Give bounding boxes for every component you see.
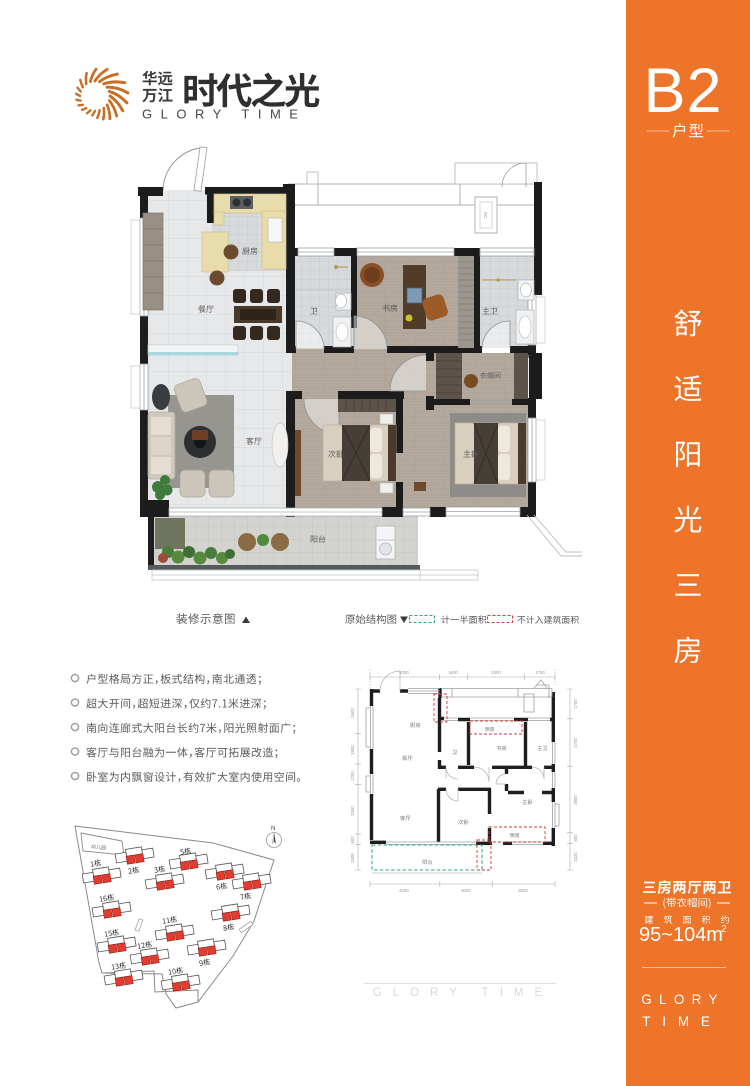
svg-text:2700: 2700 [573,738,578,748]
svg-text:2: 2 [721,924,727,935]
svg-text:N: N [271,826,275,832]
svg-text:3000: 3000 [461,888,471,893]
svg-text:1500: 1500 [350,853,355,863]
svg-text:2900: 2900 [350,806,355,816]
svg-text:AC: AC [483,212,488,219]
svg-text:1700: 1700 [573,699,578,709]
svg-text:4000: 4000 [399,670,409,675]
svg-text:3800: 3800 [573,795,578,805]
svg-text:3300: 3300 [491,670,501,675]
svg-text:TIME: TIME [642,1014,721,1029]
svg-text:1750: 1750 [535,670,545,675]
svg-text:1200: 1200 [350,771,355,781]
svg-text:2600: 2600 [350,708,355,718]
svg-text:3600: 3600 [518,888,528,893]
svg-text:1600: 1600 [448,670,458,675]
svg-text:4000: 4000 [399,888,409,893]
svg-text:1800: 1800 [350,745,355,755]
svg-text:1520: 1520 [573,852,578,862]
svg-text:GLORY: GLORY [641,992,725,1007]
svg-text:600: 600 [350,836,355,844]
svg-text:600: 600 [573,834,578,842]
svg-text:95~104m: 95~104m [639,924,723,946]
svg-text:GLORY TIME: GLORY TIME [142,107,306,122]
